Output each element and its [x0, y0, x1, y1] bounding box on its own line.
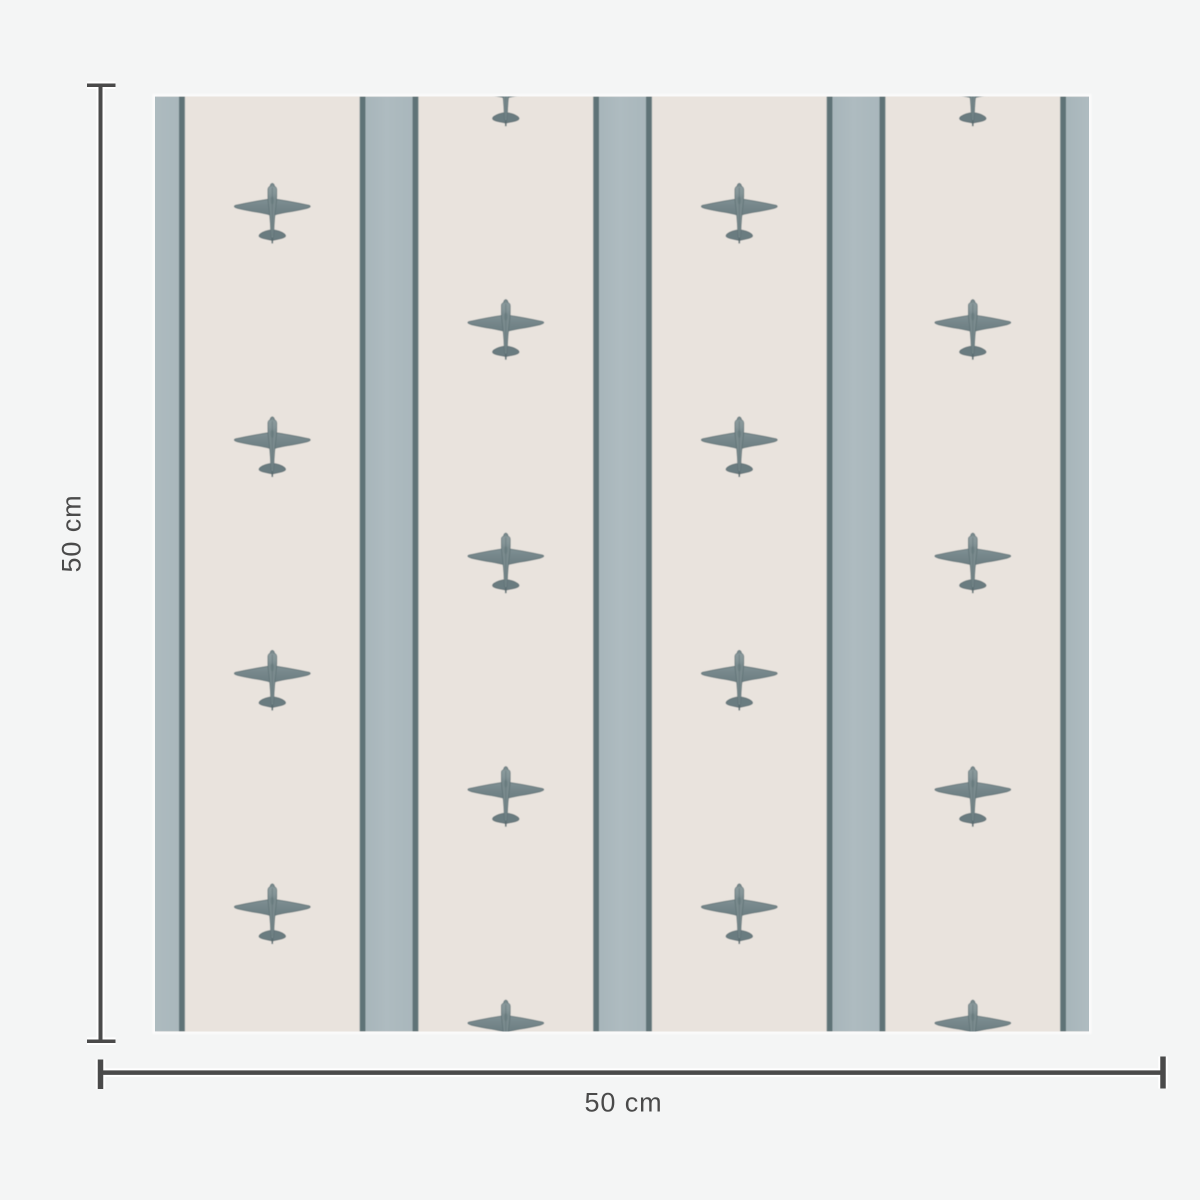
svg-text:50 cm: 50 cm [584, 1088, 662, 1118]
svg-text:50 cm: 50 cm [56, 494, 86, 572]
